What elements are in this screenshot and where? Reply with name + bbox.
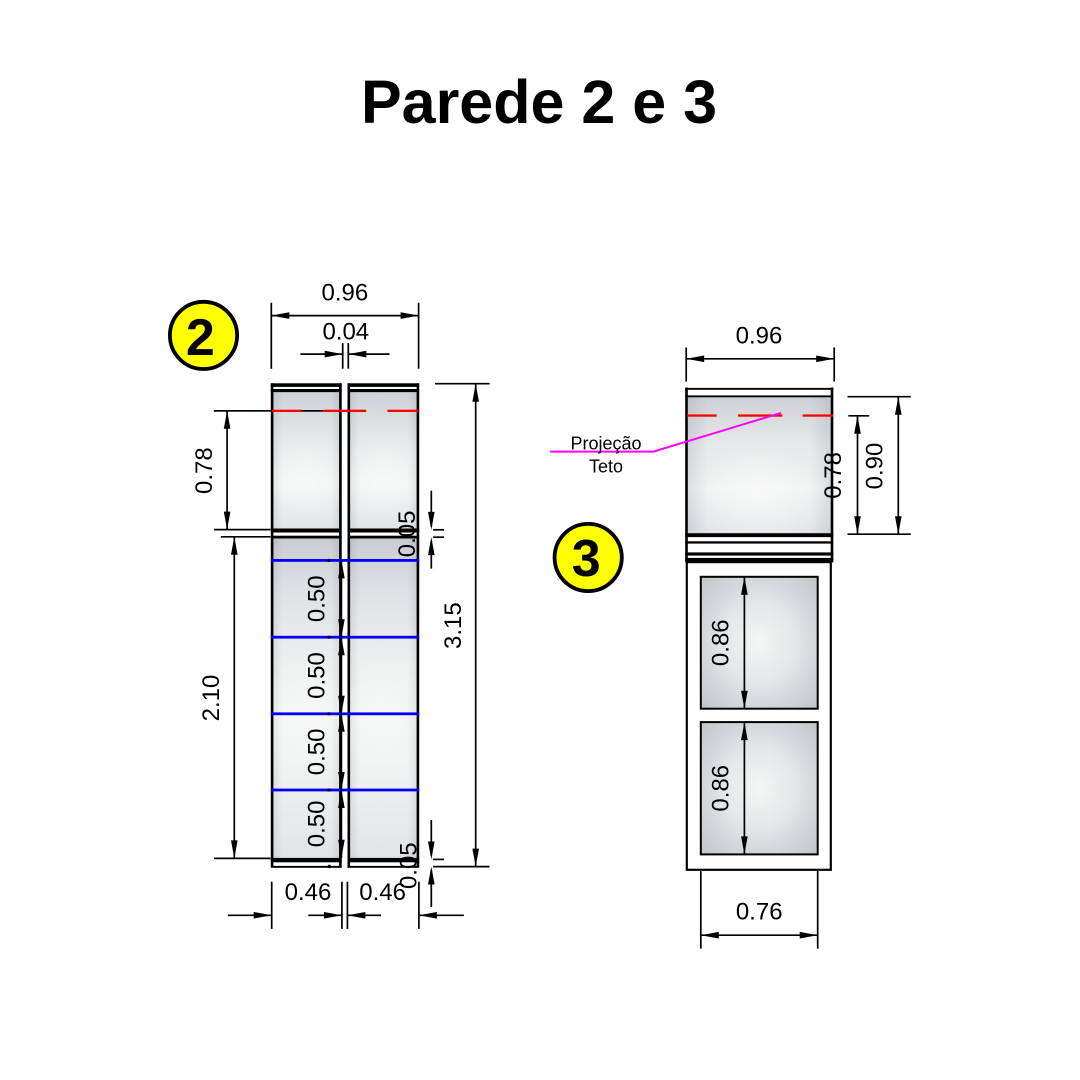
svg-text:Parede 2 e 3: Parede 2 e 3 [361,68,717,136]
svg-text:0.46: 0.46 [359,879,406,906]
svg-text:0.96: 0.96 [322,280,369,307]
svg-text:0.96: 0.96 [736,323,783,350]
svg-text:Projeção: Projeção [570,434,641,454]
svg-text:0.90: 0.90 [862,443,889,490]
svg-text:0.86: 0.86 [707,765,734,812]
svg-text:0.04: 0.04 [322,319,369,346]
svg-text:0.50: 0.50 [304,801,331,848]
svg-text:Teto: Teto [589,457,623,477]
svg-text:0.46: 0.46 [285,879,332,906]
svg-text:0.05: 0.05 [394,511,421,558]
svg-text:0.78: 0.78 [191,447,218,494]
svg-text:0.78: 0.78 [820,452,847,499]
svg-text:0.76: 0.76 [736,898,783,925]
svg-text:0.50: 0.50 [304,729,331,776]
svg-text:0.86: 0.86 [707,619,734,666]
svg-text:0.50: 0.50 [304,575,331,622]
svg-text:3.15: 3.15 [440,602,467,649]
svg-text:2: 2 [186,309,215,367]
svg-text:2.10: 2.10 [198,675,225,722]
svg-text:0.50: 0.50 [304,652,331,699]
svg-text:3: 3 [572,530,601,588]
